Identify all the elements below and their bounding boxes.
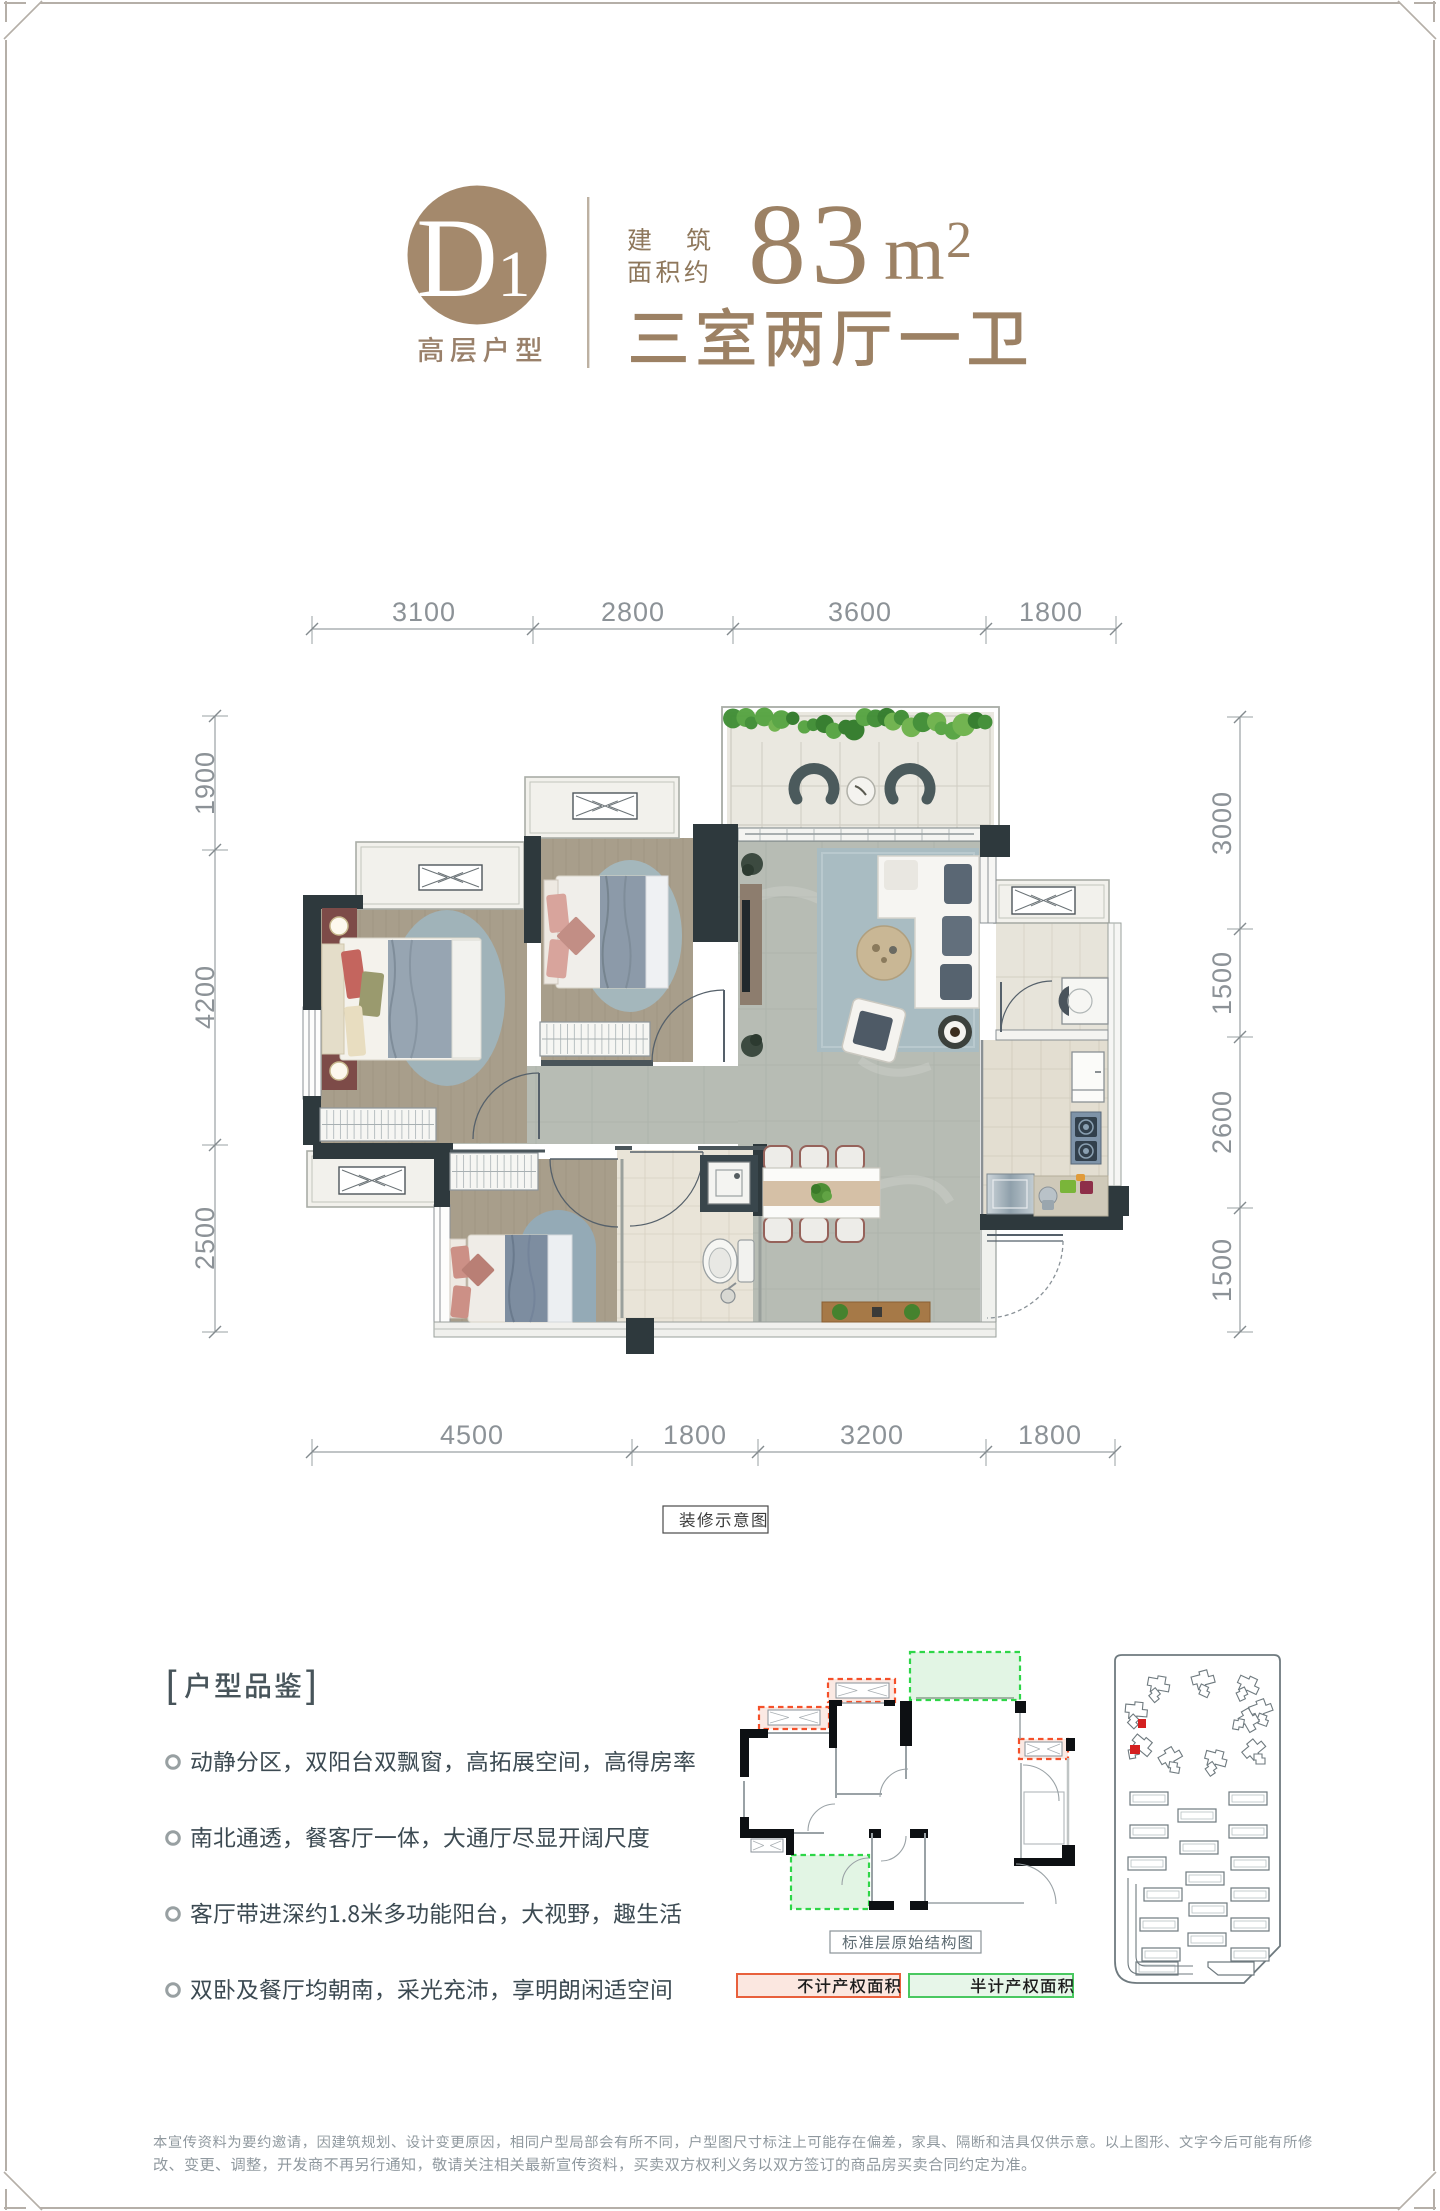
- svg-text:m: m: [884, 209, 945, 296]
- svg-text:2600: 2600: [1207, 1090, 1237, 1154]
- svg-text:4200: 4200: [190, 965, 220, 1029]
- svg-text:3100: 3100: [392, 597, 456, 627]
- svg-text:83: 83: [748, 181, 874, 309]
- svg-text:2: 2: [946, 212, 972, 269]
- svg-text:2800: 2800: [601, 597, 665, 627]
- svg-text:1800: 1800: [663, 1420, 727, 1450]
- svg-text:1800: 1800: [1019, 597, 1083, 627]
- svg-text:4500: 4500: [440, 1420, 504, 1450]
- svg-text:2500: 2500: [190, 1206, 220, 1270]
- svg-text:3200: 3200: [840, 1420, 904, 1450]
- svg-text:3600: 3600: [828, 597, 892, 627]
- svg-text:1500: 1500: [1207, 1238, 1237, 1302]
- svg-text:[: [: [166, 1664, 177, 1706]
- svg-text:3000: 3000: [1207, 791, 1237, 855]
- svg-text:1800: 1800: [1018, 1420, 1082, 1450]
- svg-text:D: D: [416, 196, 498, 321]
- svg-text:1: 1: [498, 238, 531, 311]
- svg-text:]: ]: [306, 1664, 317, 1706]
- svg-text:1900: 1900: [190, 751, 220, 815]
- svg-text:1500: 1500: [1207, 951, 1237, 1015]
